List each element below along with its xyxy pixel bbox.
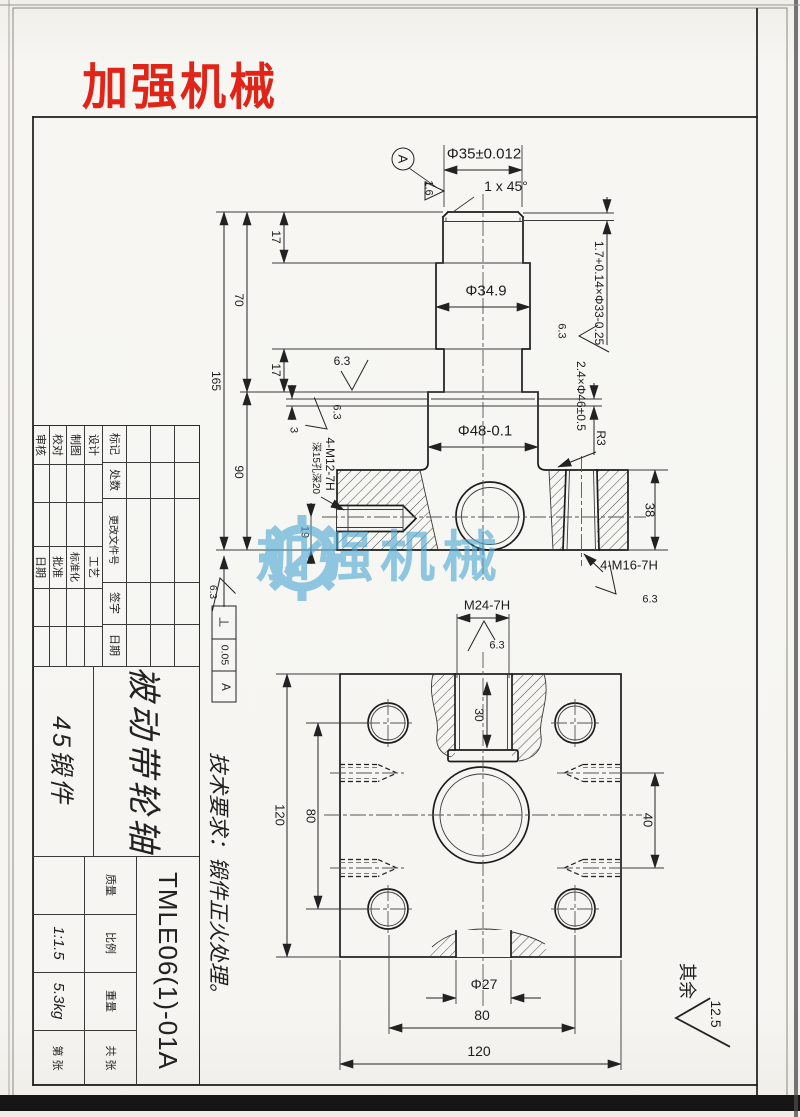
tb-scale-value: 1:1.5: [32, 914, 85, 972]
drawing-sheet: Φ35±0.0121 x 45°A1.61.7+0.14×Φ33-0.25Φ34…: [0, 0, 800, 1117]
tb-check: 校对: [50, 426, 67, 464]
tb-part-name: 被动带轮轴: [94, 666, 199, 856]
scan-edge-top: [0, 4, 800, 6]
tb-mass: 质量: [85, 856, 137, 914]
datum-triangle: [425, 182, 444, 200]
tb-design: 设计: [85, 426, 103, 464]
roughness-icon: [468, 621, 495, 651]
annotations: [205, 148, 730, 1047]
scan-edge-right: [794, 0, 798, 1117]
tb-mark: 标记: [103, 426, 127, 462]
roughness-icon: [297, 397, 337, 437]
tb-draft: 制图: [67, 426, 85, 464]
scan-edge-left: [8, 0, 10, 1095]
tb-sheet-total: 共 张: [85, 1030, 137, 1086]
tb-scale: 比例: [85, 914, 137, 972]
tb-change-doc: 更改文件号: [103, 498, 127, 582]
tb-approve: 批准: [50, 546, 67, 588]
title-block: 标记 处数 更改文件号 签字 日期 设计 制图 校对 审核 工艺 标准化 批准 …: [33, 425, 200, 1085]
roughness-icon: [579, 325, 609, 352]
tb-material: 45锻件: [32, 666, 94, 856]
tb-review: 审核: [32, 426, 50, 464]
dimension-lines: [224, 170, 655, 1064]
datum-circle: [392, 148, 414, 170]
centerlines: [322, 194, 646, 1008]
tb-weight-value: 5.3kg: [32, 972, 85, 1030]
tb-sheet-no: 第 张: [32, 1030, 85, 1086]
tb-standardize: 标准化: [67, 546, 85, 588]
tb-sign: 签字: [103, 582, 127, 624]
tb-weight: 重量: [85, 972, 137, 1030]
roughness-icon: [588, 561, 628, 601]
tb-count: 处数: [103, 462, 127, 498]
scan-edge-bottom: [0, 1095, 800, 1111]
roughness-icon: [676, 998, 730, 1047]
extension-lines: [216, 145, 668, 1070]
company-logo: 加强机械: [82, 48, 278, 119]
tb-date2: 日期: [32, 546, 50, 588]
bottom-view: [340, 674, 621, 957]
tb-date: 日期: [103, 624, 127, 666]
tolerance-frame: [212, 606, 236, 702]
tb-process: 工艺: [85, 546, 103, 588]
tb-drawing-no: TMLE06(1)-01A: [137, 856, 199, 1086]
roughness-icon: [341, 360, 368, 390]
